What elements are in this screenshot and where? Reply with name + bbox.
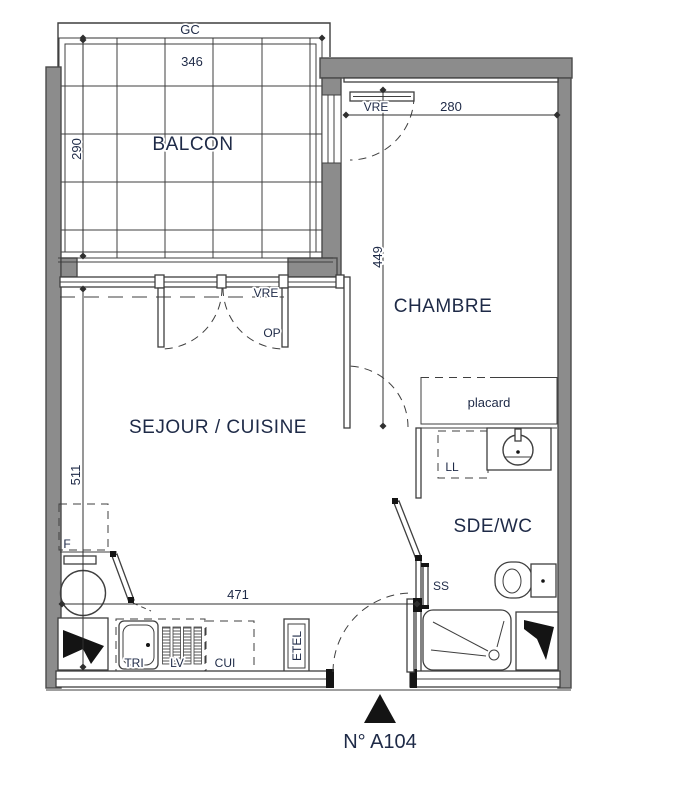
dim-balcony-depth: 290 [69,138,84,160]
room-label-bathroom: SDE/WC [454,516,533,537]
dim-living-width: 471 [227,587,249,602]
walls [46,58,572,688]
bathroom-door-leaf [394,501,421,559]
duct-box-right [516,612,558,670]
living-window-label: VRE [254,286,279,300]
unit-number: N° A104 [343,731,417,753]
bedroom-door-swing-arc [347,366,408,427]
towel-dryer-label: SS [433,579,449,593]
entry-door-leaf [407,599,414,672]
wall-right-exterior [558,78,571,688]
towel-dryer-bar [423,565,428,607]
floor-plan-drawing: GC 346 290 BALCON VRE 280 449 CHAMBRE VR… [0,0,680,800]
room-label-living: SEJOUR / CUISINE [129,417,307,438]
cooktop-label: CUI [215,656,236,670]
dim-balcony-width: 346 [181,54,203,69]
cabinet-door-leaf [112,554,134,602]
bedroom-top-inner-face [344,78,558,82]
entry-marker-triangle [364,694,396,723]
wall-left-exterior [46,67,61,688]
bathroom-door-hinge [392,498,398,504]
fridge-label: F [63,537,70,551]
room-label-bedroom: CHAMBRE [394,296,493,317]
kitchen-fixtures [58,504,309,672]
electrical-panel-label: ETEL [290,631,304,661]
railing-label: GC [180,22,200,37]
dim-bedroom-width: 280 [440,99,462,114]
wall-left-step [61,258,77,277]
dishwasher-label: LV [170,656,184,670]
sink-label: TRI [124,656,143,670]
bathroom-fixtures [423,428,558,670]
closet-label: placard [468,395,511,410]
floor-plan-page: GC 346 290 BALCON VRE 280 449 CHAMBRE VR… [0,0,680,800]
bedroom-window-label: VRE [364,100,389,114]
wall-balcony-bottom-pier [288,258,337,277]
washing-machine-label: LL [445,460,459,474]
entry-door-swing-arc [333,593,412,672]
wall-top-bedroom [320,58,572,78]
dim-bedroom-depth: 449 [370,246,385,268]
living-window-opening-label: OP [263,326,280,340]
dim-living-depth: 511 [68,465,83,486]
room-label-balcony: BALCON [152,134,233,155]
